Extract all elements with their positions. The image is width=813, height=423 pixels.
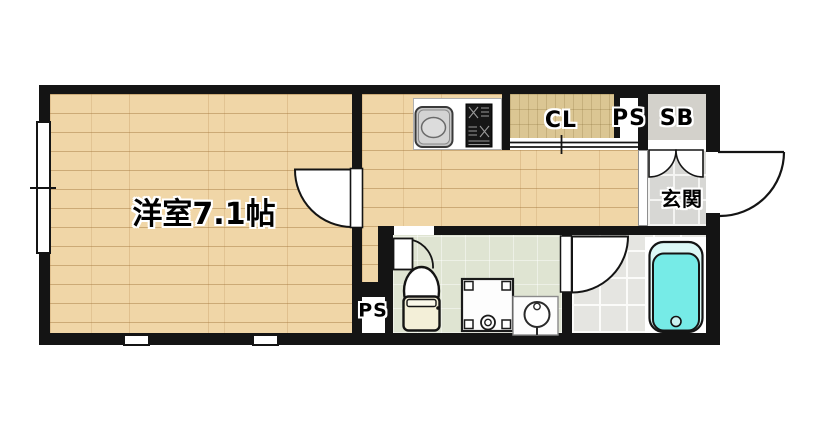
pipe-space-top-label: PS xyxy=(612,108,646,130)
kitchen-counter xyxy=(413,98,502,150)
closet-label: CL xyxy=(545,110,577,132)
hallway-nook-floor xyxy=(362,226,378,282)
pipe-space-bottom-label: PS xyxy=(358,302,388,321)
bottom-window-1 xyxy=(123,334,150,346)
toilet-door-opening xyxy=(394,226,434,235)
left-window xyxy=(36,121,51,254)
living-room-label: 洋室7.1帖 xyxy=(132,200,275,230)
entrance-label: 玄関 xyxy=(661,189,703,209)
toilet-room-floor xyxy=(393,235,562,333)
shoe-box-door-track xyxy=(648,140,706,150)
closet-door-track xyxy=(510,138,638,150)
shoe-box-label: SB xyxy=(660,108,695,130)
hallway-floor xyxy=(362,150,638,226)
bathtub-surround xyxy=(645,237,706,333)
floor-plan: 洋室7.1帖 CL PS SB 玄関 PS xyxy=(0,0,813,423)
bottom-window-2 xyxy=(252,334,279,346)
entrance-step xyxy=(638,150,648,226)
entrance-door-opening xyxy=(706,152,720,213)
entrance-door xyxy=(718,152,784,216)
